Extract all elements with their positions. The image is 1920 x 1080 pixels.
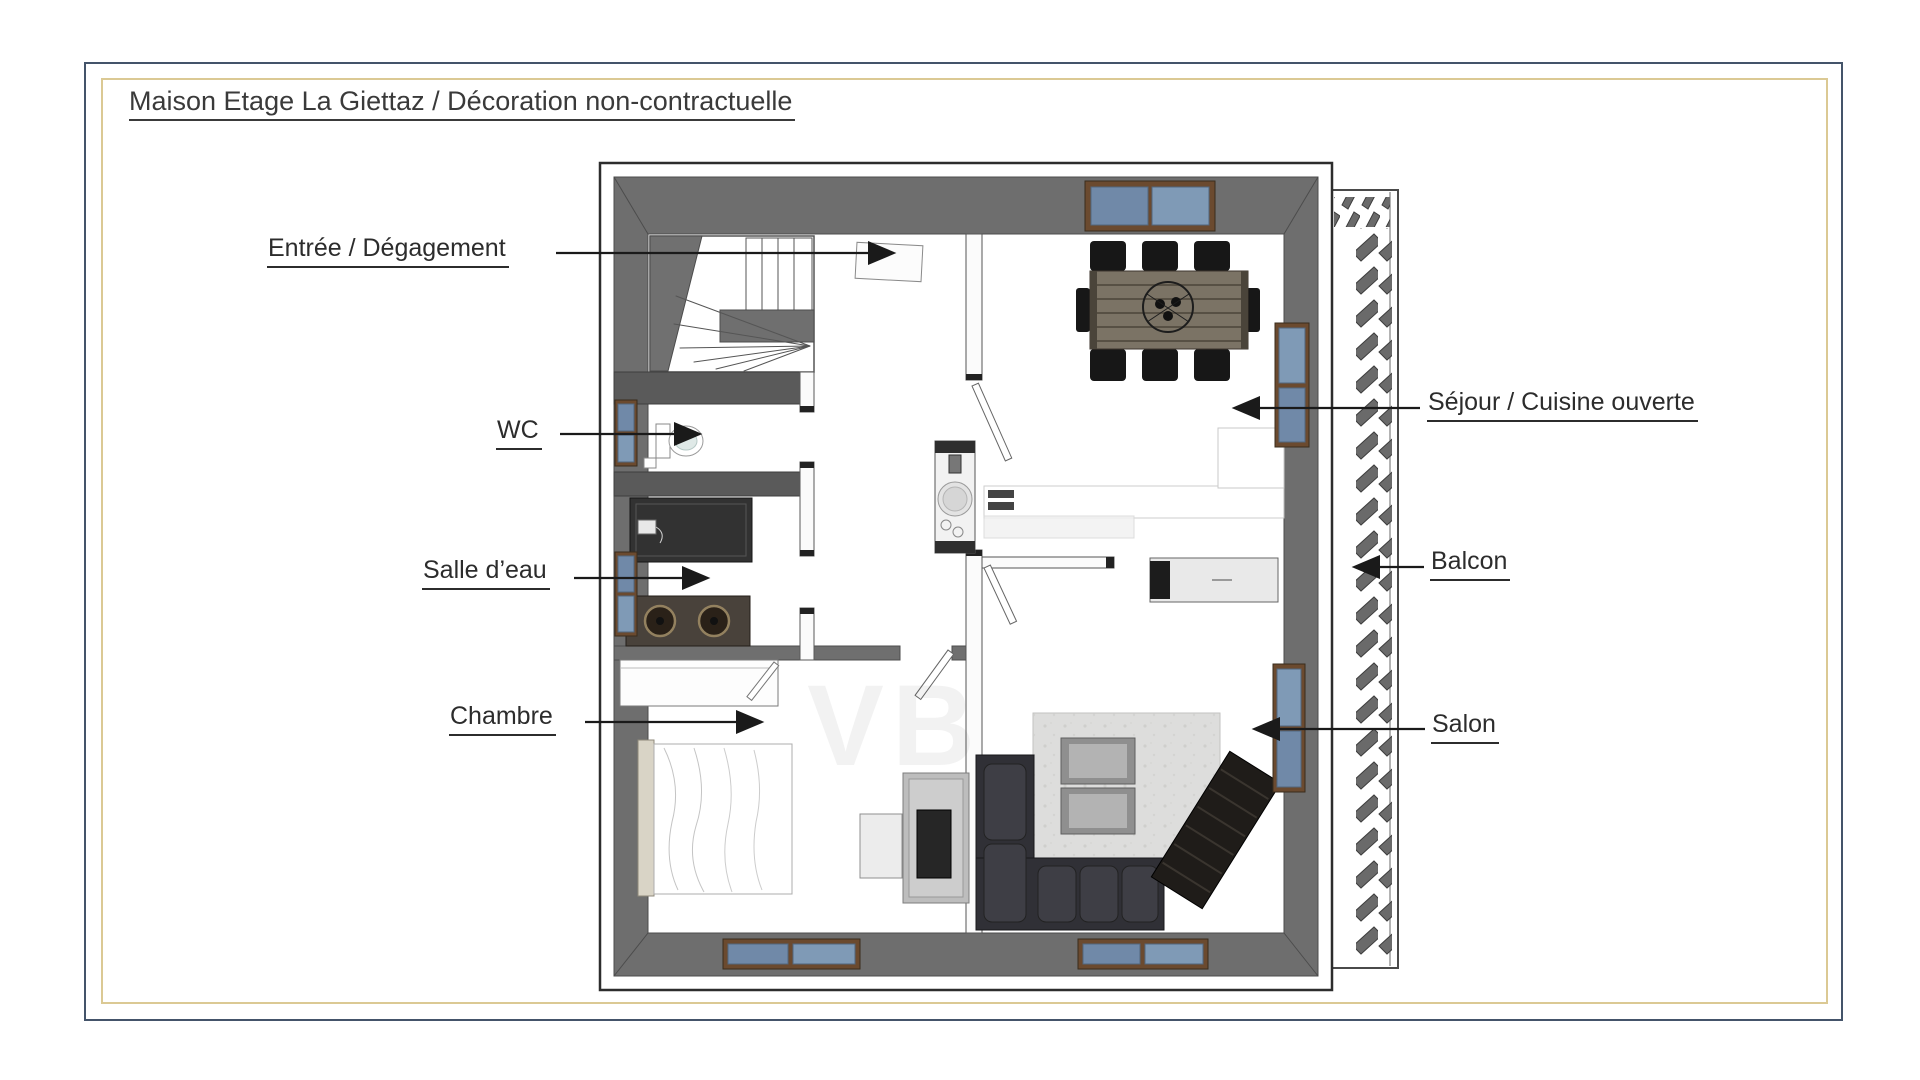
kitchen-counter-corner xyxy=(1218,428,1284,488)
tv xyxy=(917,810,951,878)
kitchen-counter xyxy=(984,486,1284,518)
toilet-tank xyxy=(656,424,670,458)
label-salon: Salon xyxy=(1431,710,1499,744)
balcony-railing xyxy=(1356,228,1392,958)
dining-chair xyxy=(1194,241,1230,271)
window-sejour-right xyxy=(1275,323,1309,447)
staircase xyxy=(650,236,814,372)
window-sejour-top xyxy=(1085,181,1215,231)
balcony xyxy=(1330,190,1398,968)
label-sejour: Séjour / Cuisine ouverte xyxy=(1427,388,1698,422)
label-entree: Entrée / Dégagement xyxy=(267,234,509,268)
dining-chair xyxy=(1090,349,1126,381)
label-wc: WC xyxy=(496,416,542,450)
wardrobe xyxy=(620,660,778,706)
kitchen-unit xyxy=(935,441,975,553)
bed xyxy=(654,744,792,894)
label-balcon: Balcon xyxy=(1430,547,1510,581)
shower-head xyxy=(638,520,656,534)
watermark: VB xyxy=(807,662,983,790)
dining-chair xyxy=(1194,349,1230,381)
side-table xyxy=(860,814,902,878)
window-salon-bottom xyxy=(1078,939,1208,969)
hallway-hatch xyxy=(855,242,923,281)
bed-headboard xyxy=(638,740,654,896)
dining-chair xyxy=(1090,241,1126,271)
dining-chair xyxy=(1142,349,1178,381)
label-salle-deau: Salle d’eau xyxy=(422,556,550,590)
window-chambre-bottom xyxy=(723,939,860,969)
dining-chair xyxy=(1142,241,1178,271)
label-chambre: Chambre xyxy=(449,702,556,736)
window-salle-deau xyxy=(615,552,637,636)
floor-plan-drawing: VB xyxy=(0,0,1920,1080)
